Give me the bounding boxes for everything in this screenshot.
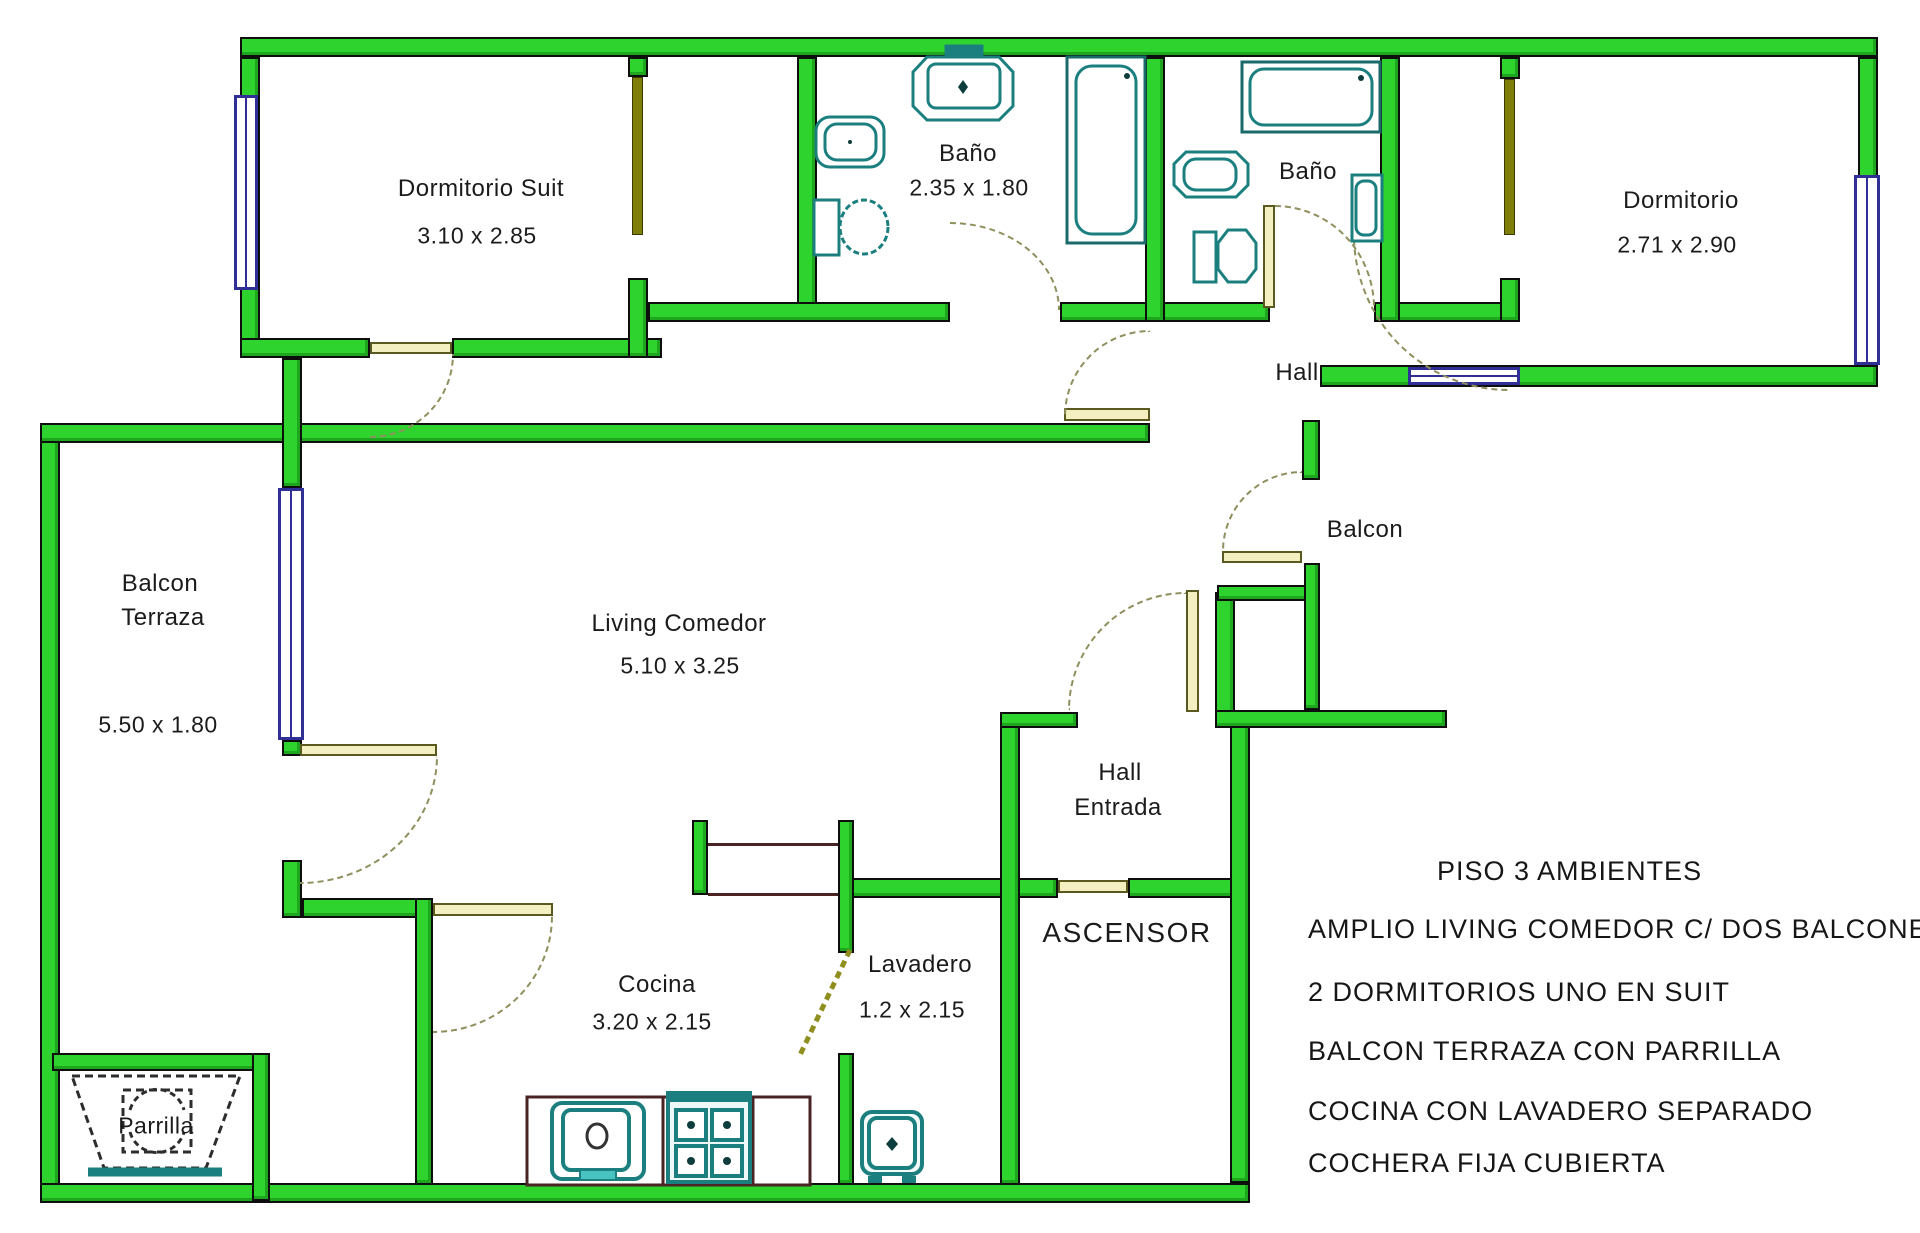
room-label-balcon-terraza-2: Terraza [121,604,205,632]
door-leaf [300,744,437,756]
window [278,488,304,740]
window [1854,175,1880,365]
room-dims-dormitorio-suit: 3.10 x 2.85 [417,223,536,250]
sink-icon [913,46,1013,120]
wall [240,338,370,358]
room-dims-dormitorio: 2.71 x 2.90 [1617,232,1736,259]
wall [1215,592,1235,723]
door-leaf [1504,79,1515,235]
wall [415,898,433,1185]
door-arc [300,756,438,884]
room-label-dormitorio: Dormitorio [1623,187,1739,215]
wall [40,1183,1250,1203]
wall [797,57,817,322]
room-dims-cocina: 3.20 x 2.15 [592,1009,711,1036]
room-label-balcon: Balcon [1327,516,1403,544]
wall [1302,420,1320,480]
door-arc [1064,330,1150,416]
wall [1230,723,1250,1183]
floor-plan: Dormitorio Suit 3.10 x 2.85 Baño 2.35 x … [0,0,1920,1233]
wall [282,740,302,756]
room-label-ascensor: ASCENSOR [1042,917,1211,949]
door-arc [950,222,1060,310]
room-label-bano-suite: Baño [939,140,997,168]
wall [692,820,708,895]
note-line-5: COCINA CON LAVADERO SEPARADO [1308,1096,1813,1127]
wall [1000,712,1020,1185]
bathtub-icon [1242,62,1380,132]
pass-through-line [708,843,838,846]
room-dims-bano-suite: 2.35 x 1.80 [909,175,1028,202]
corner-sink-icon [1352,175,1382,241]
wall [648,302,950,322]
wall [1215,710,1447,728]
room-label-hall-entrada-1: Hall [1098,759,1141,787]
door-arc [1222,471,1302,551]
room-label-hall-entrada-2: Entrada [1074,794,1162,822]
wall [1320,365,1878,387]
room-label-living-comedor: Living Comedor [591,610,766,638]
room-dims-lavadero: 1.2 x 2.15 [859,997,965,1024]
room-label-cocina: Cocina [618,971,696,999]
wall [1145,57,1165,322]
door-leaf [1186,590,1199,712]
room-dims-living-comedor: 5.10 x 3.25 [620,653,739,680]
wall [628,278,648,358]
wall [40,423,60,1203]
room-label-lavadero: Lavadero [868,951,972,979]
note-line-6: COCHERA FIJA CUBIERTA [1308,1148,1666,1179]
wall [40,423,1150,443]
room-label-bano-2: Baño [1279,158,1337,186]
kitchen-counter [527,1097,810,1185]
wall [852,878,1058,898]
door-arc [1068,592,1186,710]
wall [252,1053,270,1201]
wall [1304,563,1320,710]
door-leaf [1263,205,1275,308]
room-label-parrilla: Parrilla [118,1113,194,1140]
laundry-tub-icon [862,1112,922,1183]
room-dims-balcon-terraza: 5.50 x 1.80 [98,712,217,739]
door-leaf [433,903,553,916]
bidet-icon [1174,152,1248,197]
door-leaf [632,77,643,235]
note-line-4: BALCON TERRAZA CON PARRILLA [1308,1036,1781,1067]
kitchen-sink-icon [552,1103,644,1180]
toilet-icon [1194,230,1256,282]
wall [282,860,302,918]
door-leaf [370,342,452,354]
wall [302,898,433,918]
bidet-icon [816,117,884,167]
sliding-door [800,950,850,1055]
bathtub-icon [1067,57,1145,243]
wall [1000,712,1078,728]
window [234,95,258,290]
wall [1060,302,1270,322]
door-leaf [1058,880,1128,893]
wall [240,37,1878,57]
wall [52,1053,267,1071]
wall [282,358,302,488]
wall [628,57,648,77]
door-arc [433,916,553,1033]
room-label-balcon-terraza-1: Balcon [122,570,198,598]
door-leaf [1222,551,1302,563]
room-label-hall: Hall [1275,359,1318,387]
note-line-2: AMPLIO LIVING COMEDOR C/ DOS BALCONES [1308,914,1920,945]
wall [838,1053,854,1185]
toilet-icon [814,200,888,255]
stove-icon [668,1093,750,1182]
note-line-3: 2 DORMITORIOS UNO EN SUIT [1308,977,1730,1008]
room-label-dormitorio-suit: Dormitorio Suit [398,175,564,203]
note-line-1: PISO 3 AMBIENTES [1437,856,1702,887]
pass-through-line [708,893,838,896]
wall [1500,57,1520,79]
